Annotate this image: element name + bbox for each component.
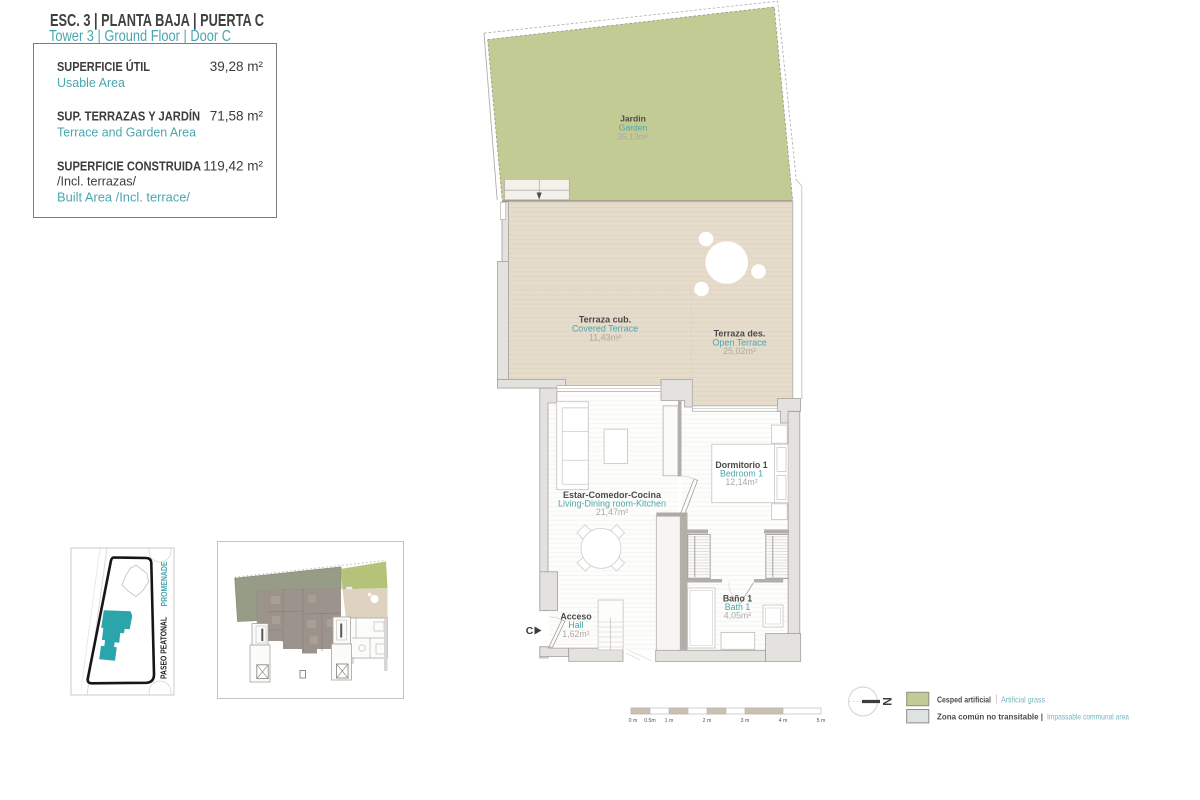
svg-text:Terrace and Garden Area: Terrace and Garden Area bbox=[57, 125, 197, 140]
svg-text:/Incl. terrazas/: /Incl. terrazas/ bbox=[57, 174, 136, 189]
svg-text:Usable Area: Usable Area bbox=[57, 75, 126, 90]
svg-text:Impassable communal area: Impassable communal area bbox=[1047, 712, 1129, 722]
svg-text:0.5m: 0.5m bbox=[644, 718, 656, 724]
svg-text:Tower 3 | Ground Floor | Door: Tower 3 | Ground Floor | Door C bbox=[49, 28, 231, 45]
svg-text:4,05m²: 4,05m² bbox=[724, 611, 751, 621]
svg-text:0 m: 0 m bbox=[629, 718, 638, 724]
svg-text:N: N bbox=[880, 697, 894, 706]
svg-text:2 m: 2 m bbox=[703, 718, 712, 724]
svg-text:Artificial grass: Artificial grass bbox=[1001, 694, 1045, 704]
svg-text:11,43m²: 11,43m² bbox=[589, 332, 621, 342]
svg-text:PROMENADE: PROMENADE bbox=[160, 561, 169, 607]
svg-text:1 m: 1 m bbox=[665, 718, 674, 724]
svg-text:Built Area /Incl. terrace/: Built Area /Incl. terrace/ bbox=[57, 190, 190, 205]
svg-text:ESC. 3 | PLANTA BAJA | PUERTA: ESC. 3 | PLANTA BAJA | PUERTA C bbox=[50, 10, 264, 30]
svg-text:5 m: 5 m bbox=[817, 718, 826, 724]
svg-text:25,02m²: 25,02m² bbox=[723, 346, 756, 356]
svg-text:119,42 m²: 119,42 m² bbox=[203, 159, 263, 174]
svg-text:21,47m²: 21,47m² bbox=[596, 507, 628, 517]
svg-text:35,13m²: 35,13m² bbox=[617, 131, 649, 141]
svg-text:PASEO PEATONAL: PASEO PEATONAL bbox=[160, 617, 169, 679]
svg-text:1,62m²: 1,62m² bbox=[562, 629, 589, 639]
svg-text:Cesped artificial: Cesped artificial bbox=[937, 694, 991, 704]
svg-text:4 m: 4 m bbox=[779, 718, 788, 724]
svg-text:SUPERFICIE CONSTRUIDA: SUPERFICIE CONSTRUIDA bbox=[57, 159, 202, 174]
svg-text:71,58 m²: 71,58 m² bbox=[210, 109, 264, 124]
svg-text:3 m: 3 m bbox=[741, 718, 750, 724]
svg-text:12,14m²: 12,14m² bbox=[725, 477, 757, 487]
svg-text:SUP. TERRAZAS Y JARDÍN: SUP. TERRAZAS Y JARDÍN bbox=[57, 109, 200, 124]
svg-text:SUPERFICIE ÚTIL: SUPERFICIE ÚTIL bbox=[57, 59, 150, 74]
svg-text:39,28 m²: 39,28 m² bbox=[210, 59, 264, 74]
svg-text:C: C bbox=[526, 625, 534, 637]
svg-text:Zona común no transitable |: Zona común no transitable | bbox=[937, 712, 1043, 722]
